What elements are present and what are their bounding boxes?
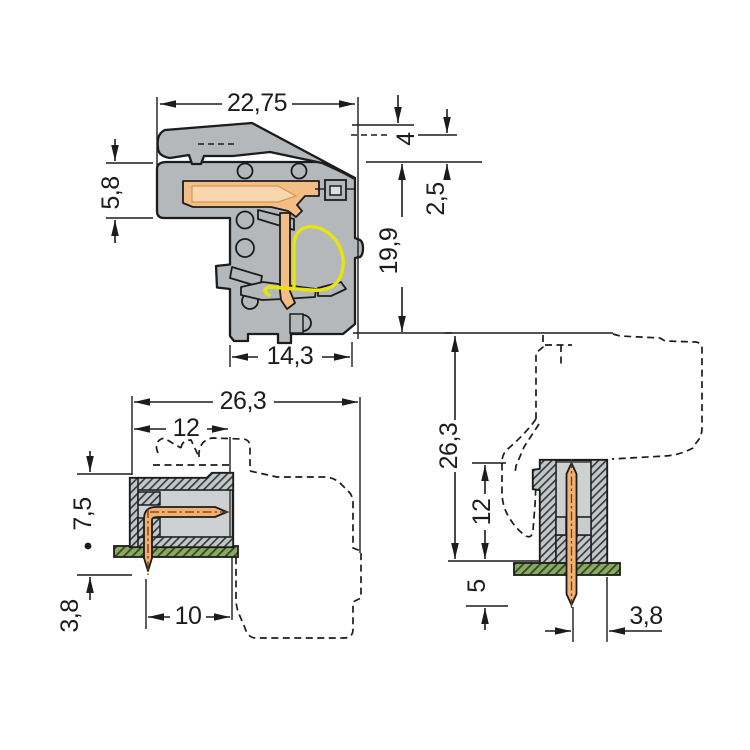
bottom-slot xyxy=(290,314,303,333)
drawing-canvas: 22,75 5,8 4 2,5 19,9 xyxy=(0,0,750,750)
housing-step xyxy=(556,517,566,535)
wire-funnel xyxy=(192,186,296,202)
dim-pin-protrusion-label: 5 xyxy=(463,579,491,592)
dim-lower-width-label: 14,3 xyxy=(267,342,314,370)
housing-step xyxy=(138,492,160,505)
housing-hole xyxy=(238,164,253,179)
dim-lever-rise-label: 4 xyxy=(392,132,420,146)
connector-dimension-drawing: 22,75 5,8 4 2,5 19,9 xyxy=(0,0,750,750)
dim-collar-label: 2,5 xyxy=(422,182,450,215)
background xyxy=(0,0,750,750)
dim-pin-length-label: 10 xyxy=(175,602,202,630)
housing-hole xyxy=(292,164,307,179)
solder-pin-front xyxy=(567,459,577,609)
housing-step xyxy=(577,517,591,535)
housing-hole xyxy=(236,239,254,257)
board-datum-dot xyxy=(85,543,92,550)
housing-hole xyxy=(237,212,254,229)
dim-pin-to-edge-label: 3,8 xyxy=(629,602,662,630)
dim-housing-depth-label: 12 xyxy=(173,414,200,442)
dim-body-height-label: 19,9 xyxy=(375,228,403,275)
dim-overall-width-label: 22,75 xyxy=(227,89,287,117)
dim-overall-depth-label: 26,3 xyxy=(220,387,267,415)
dim-height-above-board-label: 7,5 xyxy=(69,497,97,530)
dim-nose-height-label: 5,8 xyxy=(97,176,125,209)
dim-overall-height-label: 26,3 xyxy=(435,423,463,470)
dim-housing-height-label: 12 xyxy=(468,499,496,526)
dim-pin-below-board-label: 3,8 xyxy=(56,599,84,632)
